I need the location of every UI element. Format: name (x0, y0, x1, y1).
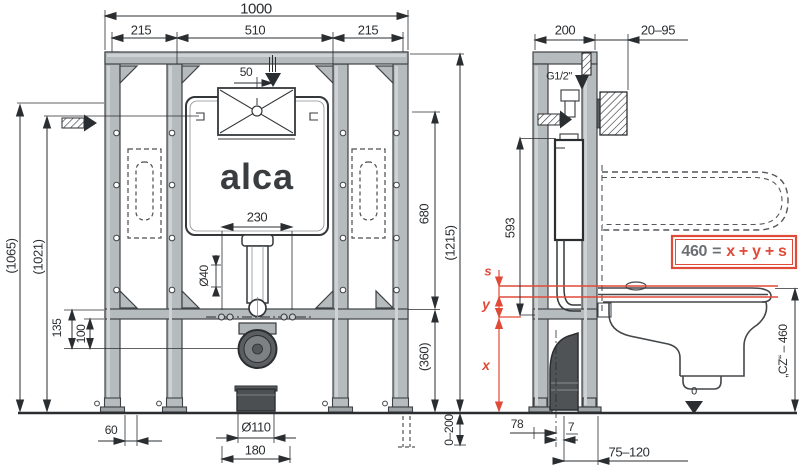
dim-drain-center: 78 (511, 418, 524, 430)
dim-depth: 200 (555, 24, 576, 37)
dim-leg-adjust: 0–200 (443, 414, 455, 445)
dim-flush-offset: 50 (240, 66, 253, 78)
brand-logo: alca (220, 159, 294, 195)
flush-pipe-front (242, 235, 273, 319)
dim-width-left: 215 (131, 24, 152, 37)
wc-elbow-front (239, 323, 277, 368)
dim-valve-height: 593 (504, 218, 517, 239)
dim-wall-offset: 20–95 (641, 24, 675, 37)
dim-drain-dia: Ø110 (241, 421, 270, 434)
dim-frame-height: (1215) (444, 225, 457, 260)
dim-label-s: s (484, 265, 491, 278)
dim-elbow-lower: 100 (75, 325, 87, 344)
dim-outlet-height: 75–120 (609, 446, 650, 459)
dim-elbow-upper: 135 (51, 319, 63, 338)
dim-drain-spacing: 180 (245, 444, 266, 457)
dim-seat-height: „CZ“ – 460 (777, 324, 789, 377)
dim-stud-spacing: 230 (247, 211, 268, 224)
bowl-profile (598, 282, 771, 389)
formula-equals: = (712, 243, 721, 261)
dim-plate-span: 680 (418, 204, 431, 225)
wall-bracket (597, 92, 627, 135)
dim-width-total: 1000 (240, 2, 272, 17)
dim-height-total: (1065) (5, 238, 18, 273)
drain-outlet-front (235, 386, 277, 411)
dim-label-x: x (482, 358, 490, 372)
dim-width-right: 215 (358, 24, 379, 37)
dim-foot-offset: 60 (105, 424, 118, 436)
dim-drain-gap: 7 (568, 421, 574, 433)
seat-height-formula: 460 = x + y + s (672, 236, 796, 268)
formula-expression: x + y + s (726, 243, 786, 261)
installation-frame-drawing: 1000 215 510 215 50 alca 230 Ø40 (1065) … (0, 0, 800, 468)
dim-flush-pipe-dia: Ø40 (198, 265, 210, 286)
dim-width-center: 510 (245, 24, 266, 37)
label-supply-thread: G1/2" (546, 72, 572, 83)
dim-height-tab: (1021) (32, 239, 45, 274)
drawing-linework (0, 0, 800, 468)
dim-label-y: y (482, 297, 490, 311)
cistern-side (555, 134, 583, 240)
label-floor-datum: 0 (691, 387, 697, 398)
dim-rail-floor: (360) (418, 343, 431, 371)
formula-value: 460 (681, 243, 707, 261)
supply-arrow-front (62, 115, 97, 132)
